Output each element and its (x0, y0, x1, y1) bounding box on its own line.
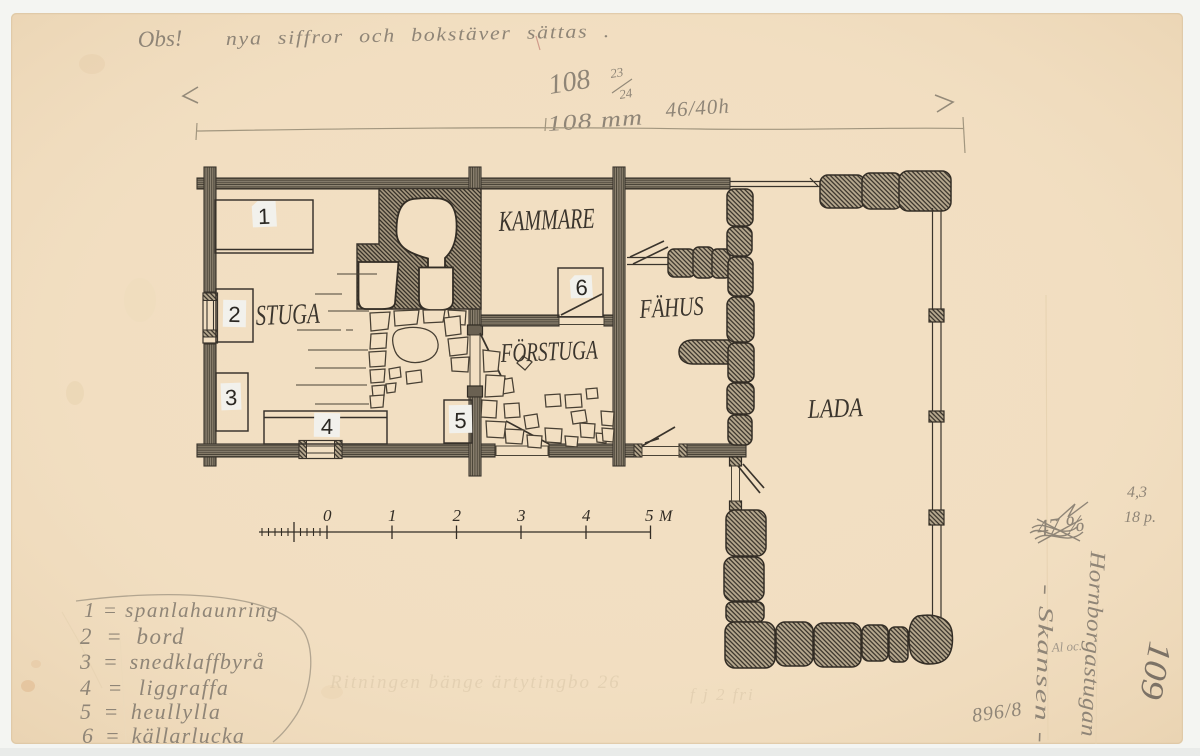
svg-text:18 p.: 18 p. (1124, 509, 1156, 526)
svg-text:1: 1 (258, 204, 271, 229)
svg-text:f j 2 fri: f j 2 fri (690, 685, 755, 704)
svg-text:2: 2 (228, 302, 241, 327)
svg-text:3: 3 (224, 385, 237, 410)
svg-text:2: 2 (453, 506, 462, 525)
svg-text:4: 4 (582, 506, 591, 525)
svg-text:3: 3 (516, 506, 526, 525)
svg-text:STUGA: STUGA (255, 298, 320, 332)
svg-text:4,3: 4,3 (1127, 484, 1147, 501)
svg-text:Al oc.: Al oc. (1050, 638, 1082, 655)
svg-text:LADA: LADA (806, 392, 863, 424)
svg-text:4 = liggraffa: 4 = liggraffa (80, 675, 229, 700)
svg-text:4: 4 (321, 414, 334, 439)
svg-text:3 = snedklaffbyrå: 3 = snedklaffbyrå (79, 649, 265, 674)
svg-text:46/40h: 46/40h (665, 94, 731, 122)
svg-text:5: 5 (454, 408, 467, 433)
svg-text:0: 0 (323, 506, 332, 525)
svg-text:FÖRSTUGA: FÖRSTUGA (499, 335, 598, 368)
svg-text:6 = källarlucka: 6 = källarlucka (82, 723, 245, 748)
svg-text:1 = spanlahaunring: 1 = spanlahaunring (84, 598, 279, 622)
svg-text:1: 1 (388, 506, 397, 525)
svg-text:108: 108 (546, 64, 592, 101)
svg-text:Ritningen bänge ärtytingbo 2: Ritningen bänge ärtytingbo 26 (329, 672, 621, 693)
svg-text:FÄHUS: FÄHUS (638, 291, 705, 324)
svg-text:5 = heullylla: 5 = heullylla (80, 699, 221, 724)
svg-text:2 = bord: 2 = bord (80, 624, 185, 649)
svg-text:KAMMARE: KAMMARE (497, 203, 595, 238)
svg-text:6: 6 (575, 275, 588, 300)
svg-text:5: 5 (645, 506, 654, 525)
svg-text:Obs!: Obs! (137, 25, 183, 52)
svg-text:M: M (658, 508, 674, 525)
